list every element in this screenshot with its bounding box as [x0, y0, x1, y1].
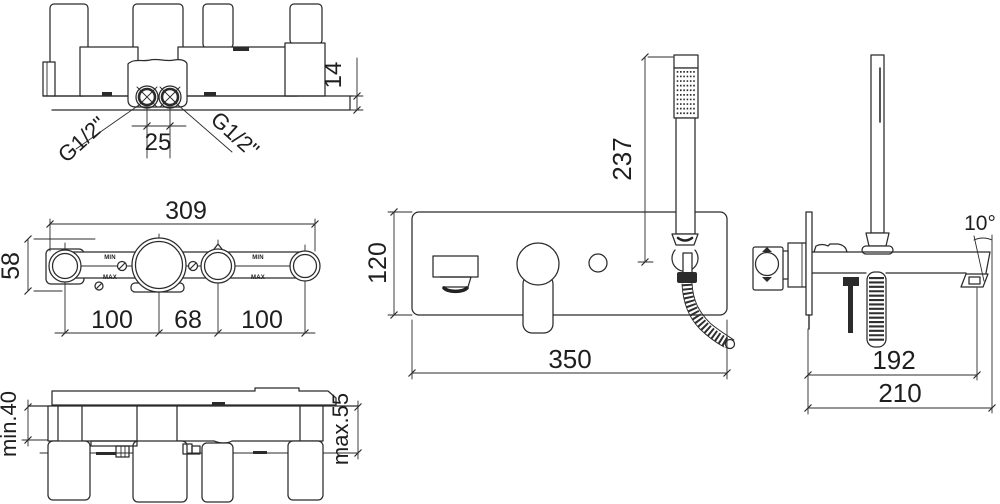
valve-port-side	[756, 253, 779, 276]
body-block-right	[178, 47, 297, 96]
mount-flange-side	[788, 243, 806, 287]
handshower-handle	[676, 118, 695, 234]
dim-spout-angle: 10°	[964, 212, 996, 235]
view-trim-side: 10° 192 210	[753, 55, 996, 414]
handshower-side	[871, 55, 884, 233]
thread-label-right: G1/2"	[206, 107, 264, 163]
left-flange	[43, 62, 55, 96]
dim-body-height: 58	[0, 252, 25, 280]
view-body-bottom: min.40 max.55	[0, 388, 362, 502]
dim-spout-projection: 192	[872, 345, 915, 375]
cartridge-circle	[132, 238, 186, 292]
technical-drawing-page: 25 14 G1/2" G1/2" MIN MAX MIN MAX	[0, 0, 1000, 504]
view-body-front: MIN MAX MIN MAX 309 58 100 68 100	[0, 197, 320, 337]
min-label-left: MIN	[104, 255, 116, 261]
handshower-nut-side	[866, 233, 889, 246]
max-label-left: MAX	[103, 275, 117, 281]
holder-side	[862, 246, 893, 254]
cylinder-4	[288, 441, 323, 500]
dim-depth-max: max.55	[328, 393, 353, 465]
dim-handshower-length: 237	[607, 137, 637, 180]
port-cylinder-2	[133, 4, 183, 62]
dim-wall-offset: 14	[320, 62, 347, 89]
hose-nut	[677, 272, 697, 283]
cylinder-1	[48, 441, 90, 500]
cylinder-2	[133, 441, 187, 502]
thread-label-left: G1/2"	[53, 112, 111, 168]
dim-port-spacing: 25	[145, 129, 172, 156]
cylinder-3	[202, 443, 233, 502]
dim-total-projection: 210	[878, 378, 921, 408]
block-2	[177, 406, 303, 443]
port-cylinder-3	[203, 4, 233, 48]
lever-hub	[517, 243, 559, 285]
body-block-end	[285, 43, 325, 96]
dim-pitch-left: 100	[91, 306, 133, 334]
dim-total-width: 309	[165, 197, 207, 225]
min-label-right: MIN	[252, 255, 264, 261]
trim-plate-side	[806, 212, 812, 315]
lever-side	[843, 277, 859, 286]
port-circle-2	[290, 251, 320, 281]
port-circle-1	[49, 250, 81, 282]
block-1	[82, 406, 137, 441]
handshower-cap	[674, 55, 698, 68]
dim-plate-width: 350	[548, 344, 591, 374]
diverter-circle	[201, 249, 235, 283]
flange-left	[48, 406, 58, 441]
dim-depth-min: min.40	[0, 391, 21, 457]
dim-pitch-center: 68	[174, 306, 202, 334]
handshower-sprayface	[674, 68, 698, 118]
spout-bar-side	[812, 252, 990, 273]
port-cylinder-4	[290, 4, 322, 44]
base-slab	[52, 388, 336, 405]
max-label-right: MAX	[251, 275, 265, 281]
view-body-top: 25 14 G1/2" G1/2"	[43, 4, 363, 167]
block-3	[300, 406, 323, 441]
view-trim-front: 120 350 237	[364, 54, 735, 380]
dim-plate-height: 120	[364, 242, 392, 284]
technical-drawing-canvas: 25 14 G1/2" G1/2" MIN MAX MIN MAX	[0, 0, 1000, 504]
dim-pitch-right: 100	[241, 306, 283, 334]
